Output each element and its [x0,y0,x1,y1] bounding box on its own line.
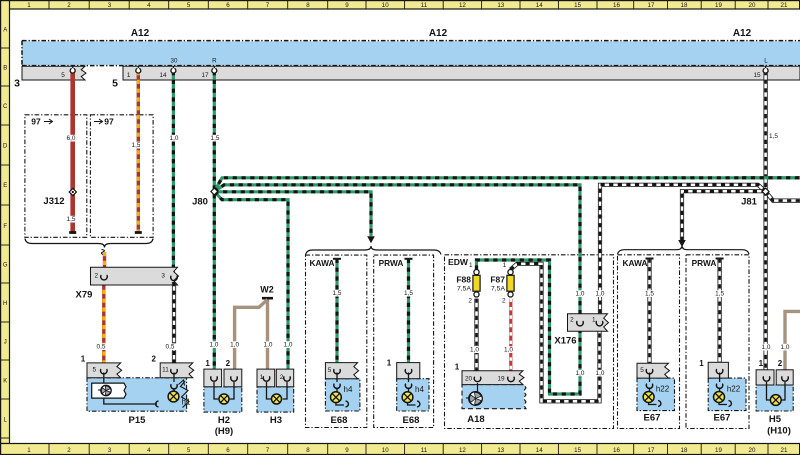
svg-text:18: 18 [681,2,688,9]
svg-text:1: 1 [127,72,131,79]
svg-text:1,0: 1,0 [596,370,605,377]
svg-text:13: 13 [497,447,504,454]
svg-text:2: 2 [226,359,231,368]
svg-text:21: 21 [781,447,788,454]
svg-text:6: 6 [226,2,230,9]
svg-text:30: 30 [171,58,178,65]
svg-text:19: 19 [715,447,722,454]
svg-text:5: 5 [93,367,97,374]
svg-text:3: 3 [108,2,112,9]
svg-text:15: 15 [574,447,581,454]
svg-text:12: 12 [459,447,466,454]
svg-text:H2: H2 [218,415,230,426]
svg-text:11: 11 [421,447,428,454]
svg-text:1: 1 [759,359,764,368]
svg-text:10: 10 [382,447,389,454]
svg-text:1: 1 [699,359,704,368]
svg-text:E67: E67 [644,413,661,424]
svg-text:B: B [3,65,7,71]
svg-text:1: 1 [205,359,210,368]
svg-text:1,5: 1,5 [645,291,654,298]
svg-text:5: 5 [61,72,65,79]
svg-text:1,5: 1,5 [333,290,342,297]
svg-text:5: 5 [187,447,191,454]
svg-text:C: C [3,104,8,110]
svg-text:h4: h4 [415,385,424,394]
svg-text:A12: A12 [733,28,752,39]
svg-text:H5: H5 [769,414,782,425]
svg-text:A12: A12 [429,28,448,39]
svg-text:4: 4 [147,2,151,9]
svg-text:11: 11 [162,367,169,374]
svg-text:J: J [4,339,7,345]
svg-text:J80: J80 [192,197,208,208]
svg-text:J81: J81 [741,197,758,208]
svg-text:PRWA: PRWA [379,258,404,268]
svg-text:1,0: 1,0 [470,347,479,354]
svg-text:1,0: 1,0 [210,342,219,349]
svg-text:2: 2 [95,273,99,280]
svg-text:1,0: 1,0 [170,135,179,142]
svg-text:1,0: 1,0 [576,370,585,377]
svg-text:E68: E68 [331,415,348,426]
svg-text:1,5: 1,5 [211,135,220,142]
svg-text:20: 20 [749,447,756,454]
svg-text:X79: X79 [76,290,93,301]
svg-text:8: 8 [306,2,310,9]
svg-text:(H9): (H9) [215,426,233,437]
svg-text:F: F [3,224,7,230]
svg-text:1,0: 1,0 [762,344,771,351]
svg-text:EDW: EDW [448,257,469,267]
svg-text:18: 18 [681,447,688,454]
svg-text:h22: h22 [727,385,741,394]
svg-text:h4: h4 [344,385,353,394]
svg-text:2: 2 [67,447,71,454]
svg-text:1: 1 [81,355,86,364]
svg-text:h22: h22 [656,385,670,394]
svg-text:7,5A: 7,5A [457,286,471,293]
svg-text:20: 20 [749,2,756,9]
svg-text:P15: P15 [129,415,147,426]
svg-text:1: 1 [27,447,31,454]
svg-text:1,0: 1,0 [781,344,790,351]
svg-text:20: 20 [465,376,473,383]
svg-text:13: 13 [497,2,504,9]
svg-text:0,5: 0,5 [166,344,175,351]
svg-text:X176: X176 [554,336,576,347]
svg-text:1,5: 1,5 [404,290,413,297]
svg-text:H: H [3,301,7,307]
svg-text:21: 21 [781,2,788,9]
svg-text:9: 9 [345,447,349,454]
svg-text:R: R [212,58,217,65]
svg-text:8: 8 [306,447,310,454]
svg-text:h1: h1 [182,398,191,407]
svg-text:F88: F88 [456,275,471,285]
svg-text:5: 5 [640,367,644,374]
svg-text:2: 2 [468,298,472,305]
svg-text:3: 3 [108,447,112,454]
svg-text:1,5: 1,5 [132,142,141,149]
svg-text:E67: E67 [714,413,731,424]
svg-text:1,5: 1,5 [715,291,724,298]
svg-text:7: 7 [266,447,270,454]
svg-text:5: 5 [112,78,118,90]
svg-text:10: 10 [382,2,389,9]
svg-text:1,5: 1,5 [769,133,778,140]
svg-text:K: K [3,378,7,384]
svg-text:2: 2 [67,2,71,9]
svg-text:1,0: 1,0 [576,291,585,298]
svg-text:14: 14 [159,72,167,79]
svg-text:A18: A18 [467,414,484,425]
svg-text:KAWA: KAWA [623,258,648,268]
svg-text:1: 1 [592,316,596,323]
svg-text:1,0: 1,0 [230,342,239,349]
svg-text:KAWA: KAWA [310,258,335,268]
svg-text:7: 7 [266,2,270,9]
svg-text:2: 2 [151,355,156,364]
svg-text:H3: H3 [270,415,282,426]
svg-text:1: 1 [27,2,31,9]
svg-text:W2: W2 [260,285,274,295]
svg-text:12: 12 [459,2,466,9]
svg-text:97: 97 [31,117,41,127]
svg-text:5: 5 [187,2,191,9]
svg-text:9: 9 [345,2,349,9]
svg-text:3: 3 [14,78,20,90]
svg-text:1: 1 [469,262,473,269]
svg-text:A12: A12 [131,28,150,39]
svg-text:1: 1 [260,374,264,381]
svg-text:17: 17 [648,447,655,454]
svg-text:19: 19 [715,2,722,9]
svg-text:E: E [3,183,7,189]
svg-text:2: 2 [778,359,783,368]
svg-text:14: 14 [536,447,543,454]
svg-text:A: A [3,27,7,33]
svg-text:17: 17 [648,2,655,9]
svg-text:1: 1 [455,363,460,372]
svg-text:1,0: 1,0 [504,347,513,354]
svg-text:15: 15 [574,2,581,9]
svg-text:F87: F87 [490,275,505,285]
svg-text:14: 14 [536,2,543,9]
svg-text:17: 17 [201,72,209,79]
svg-text:1,0: 1,0 [264,342,273,349]
svg-text:16: 16 [613,2,620,9]
svg-text:16: 16 [613,447,620,454]
svg-text:PRWA: PRWA [692,258,717,268]
svg-text:1: 1 [503,262,507,269]
svg-text:7,5A: 7,5A [491,286,505,293]
svg-text:19: 19 [497,376,505,383]
svg-text:1,0: 1,0 [284,342,293,349]
svg-text:6: 6 [226,447,230,454]
svg-text:D: D [3,143,8,149]
svg-text:2: 2 [570,316,574,323]
svg-text:4: 4 [147,447,151,454]
svg-text:3: 3 [161,273,165,280]
svg-text:1: 1 [387,359,392,368]
svg-text:1,5: 1,5 [67,216,76,223]
svg-text:2: 2 [280,374,284,381]
svg-text:6,0: 6,0 [67,135,76,142]
svg-text:J312: J312 [43,196,64,207]
svg-text:1,0: 1,0 [596,291,605,298]
svg-text:15: 15 [753,72,761,79]
svg-text:0,5: 0,5 [97,344,106,351]
svg-text:(H10): (H10) [767,426,791,437]
svg-text:G: G [3,262,8,268]
svg-text:97: 97 [104,117,114,127]
svg-text:E68: E68 [403,415,420,426]
svg-text:L: L [764,58,768,65]
svg-text:11: 11 [421,2,428,9]
svg-text:2: 2 [502,298,506,305]
svg-text:5: 5 [328,367,332,374]
